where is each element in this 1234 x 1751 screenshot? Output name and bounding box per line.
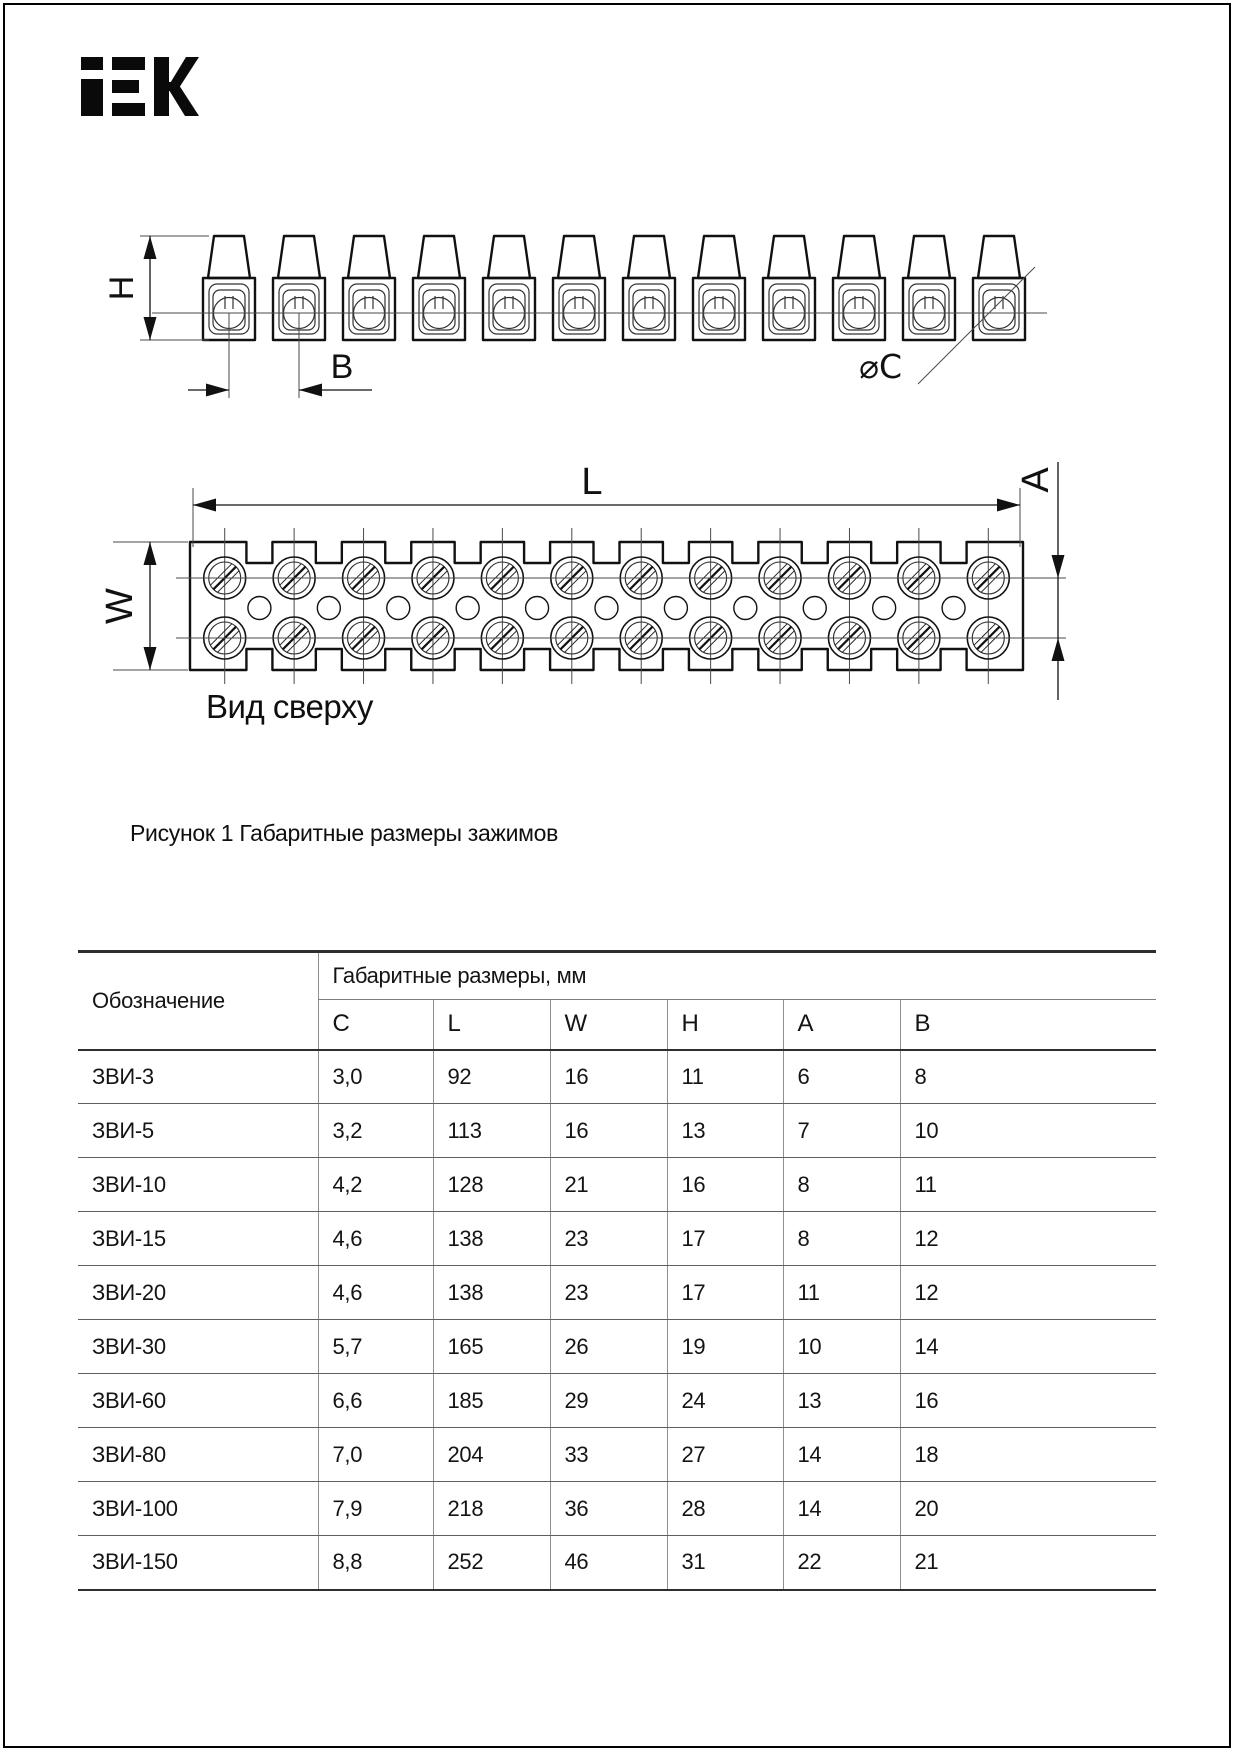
col-header-h: H bbox=[667, 1000, 783, 1050]
col-header-a: A bbox=[783, 1000, 900, 1050]
figure-drawings: H B ⌀C L A W bbox=[0, 0, 1234, 780]
cell-designation: ЗВИ-3 bbox=[78, 1050, 318, 1104]
cell-h: 24 bbox=[667, 1374, 783, 1428]
table-row: ЗВИ-33,092161168 bbox=[78, 1050, 1156, 1104]
mounting-hole bbox=[734, 597, 757, 620]
cell-c: 8,8 bbox=[318, 1536, 433, 1590]
cell-c: 6,6 bbox=[318, 1374, 433, 1428]
cell-designation: ЗВИ-10 bbox=[78, 1158, 318, 1212]
mounting-hole bbox=[317, 597, 340, 620]
cell-h: 16 bbox=[667, 1158, 783, 1212]
cell-c: 3,0 bbox=[318, 1050, 433, 1104]
cell-b: 14 bbox=[900, 1320, 1156, 1374]
dim-label-h: H bbox=[103, 276, 141, 301]
cell-a: 13 bbox=[783, 1374, 900, 1428]
cell-a: 14 bbox=[783, 1428, 900, 1482]
table-row: ЗВИ-1007,921836281420 bbox=[78, 1482, 1156, 1536]
cell-l: 165 bbox=[433, 1320, 550, 1374]
cell-designation: ЗВИ-5 bbox=[78, 1104, 318, 1158]
cell-h: 31 bbox=[667, 1536, 783, 1590]
screw-column bbox=[343, 528, 385, 684]
table-row: ЗВИ-154,61382317812 bbox=[78, 1212, 1156, 1266]
terminal-cell bbox=[623, 236, 675, 340]
cell-h: 13 bbox=[667, 1104, 783, 1158]
mounting-hole bbox=[248, 597, 271, 620]
cell-h: 19 bbox=[667, 1320, 783, 1374]
terminal-cell bbox=[763, 236, 815, 340]
cell-c: 7,0 bbox=[318, 1428, 433, 1482]
cell-c: 7,9 bbox=[318, 1482, 433, 1536]
mounting-hole bbox=[526, 597, 549, 620]
cell-b: 11 bbox=[900, 1158, 1156, 1212]
cell-a: 11 bbox=[783, 1266, 900, 1320]
cell-b: 12 bbox=[900, 1266, 1156, 1320]
cell-b: 8 bbox=[900, 1050, 1156, 1104]
cell-a: 8 bbox=[783, 1212, 900, 1266]
col-header-designation: Обозначение bbox=[78, 952, 318, 1050]
screw-column bbox=[551, 528, 593, 684]
terminal-cell bbox=[483, 236, 535, 340]
cell-h: 17 bbox=[667, 1266, 783, 1320]
terminal-cell bbox=[413, 236, 465, 340]
cell-b: 12 bbox=[900, 1212, 1156, 1266]
cell-l: 138 bbox=[433, 1266, 550, 1320]
cell-w: 26 bbox=[550, 1320, 667, 1374]
top-view-outline bbox=[190, 542, 1023, 670]
side-view-cells bbox=[203, 236, 1025, 340]
cell-a: 22 bbox=[783, 1536, 900, 1590]
col-header-w: W bbox=[550, 1000, 667, 1050]
mounting-hole bbox=[803, 597, 826, 620]
dim-label-l: L bbox=[581, 461, 602, 503]
screw-column bbox=[273, 528, 315, 684]
cell-designation: ЗВИ-60 bbox=[78, 1374, 318, 1428]
cell-designation: ЗВИ-15 bbox=[78, 1212, 318, 1266]
cell-l: 252 bbox=[433, 1536, 550, 1590]
cell-w: 16 bbox=[550, 1050, 667, 1104]
col-header-dimensions-group: Габаритные размеры, мм bbox=[318, 952, 1156, 1000]
terminal-cell bbox=[903, 236, 955, 340]
cell-h: 27 bbox=[667, 1428, 783, 1482]
cell-h: 11 bbox=[667, 1050, 783, 1104]
cell-w: 36 bbox=[550, 1482, 667, 1536]
cell-a: 10 bbox=[783, 1320, 900, 1374]
cell-h: 17 bbox=[667, 1212, 783, 1266]
mounting-hole bbox=[873, 597, 896, 620]
terminal-cell bbox=[833, 236, 885, 340]
screw-column bbox=[481, 528, 523, 684]
table-row: ЗВИ-104,21282116811 bbox=[78, 1158, 1156, 1212]
screw-column bbox=[898, 528, 940, 684]
cell-b: 10 bbox=[900, 1104, 1156, 1158]
cell-w: 46 bbox=[550, 1536, 667, 1590]
table-row: ЗВИ-53,21131613710 bbox=[78, 1104, 1156, 1158]
mounting-hole bbox=[387, 597, 410, 620]
cell-designation: ЗВИ-20 bbox=[78, 1266, 318, 1320]
cell-c: 4,6 bbox=[318, 1266, 433, 1320]
cell-designation: ЗВИ-100 bbox=[78, 1482, 318, 1536]
cell-w: 29 bbox=[550, 1374, 667, 1428]
terminal-cell bbox=[973, 236, 1025, 340]
mounting-hole bbox=[456, 597, 479, 620]
cell-b: 16 bbox=[900, 1374, 1156, 1428]
cell-c: 3,2 bbox=[318, 1104, 433, 1158]
cell-l: 128 bbox=[433, 1158, 550, 1212]
cell-w: 23 bbox=[550, 1266, 667, 1320]
cell-w: 33 bbox=[550, 1428, 667, 1482]
screw-column bbox=[967, 528, 1009, 684]
mounting-hole bbox=[664, 597, 687, 620]
cell-designation: ЗВИ-150 bbox=[78, 1536, 318, 1590]
terminal-cell bbox=[553, 236, 605, 340]
figure-caption: Рисунок 1 Габаритные размеры зажимов bbox=[130, 820, 558, 847]
cell-a: 8 bbox=[783, 1158, 900, 1212]
terminal-cell bbox=[693, 236, 745, 340]
screw-column bbox=[690, 528, 732, 684]
top-view-block bbox=[190, 528, 1023, 684]
table-row: ЗВИ-204,613823171112 bbox=[78, 1266, 1156, 1320]
col-header-c: C bbox=[318, 1000, 433, 1050]
table-row: ЗВИ-1508,825246312221 bbox=[78, 1536, 1156, 1590]
mounting-hole bbox=[595, 597, 618, 620]
table-row: ЗВИ-606,618529241316 bbox=[78, 1374, 1156, 1428]
screw-column bbox=[412, 528, 454, 684]
cell-w: 16 bbox=[550, 1104, 667, 1158]
cell-l: 185 bbox=[433, 1374, 550, 1428]
cell-designation: ЗВИ-80 bbox=[78, 1428, 318, 1482]
col-header-l: L bbox=[433, 1000, 550, 1050]
table-row: ЗВИ-807,020433271418 bbox=[78, 1428, 1156, 1482]
screw-column bbox=[828, 528, 870, 684]
cell-a: 14 bbox=[783, 1482, 900, 1536]
cell-l: 92 bbox=[433, 1050, 550, 1104]
table-header-row-1: Обозначение Габаритные размеры, мм bbox=[78, 952, 1156, 1000]
cell-designation: ЗВИ-30 bbox=[78, 1320, 318, 1374]
cell-c: 4,6 bbox=[318, 1212, 433, 1266]
col-header-b: B bbox=[900, 1000, 1156, 1050]
cell-w: 21 bbox=[550, 1158, 667, 1212]
dim-label-diameter-c: ⌀C bbox=[859, 347, 902, 386]
cell-l: 138 bbox=[433, 1212, 550, 1266]
terminal-cell bbox=[343, 236, 395, 340]
mounting-hole bbox=[942, 597, 965, 620]
cell-h: 28 bbox=[667, 1482, 783, 1536]
dim-label-b: B bbox=[331, 348, 354, 386]
screw-column bbox=[620, 528, 662, 684]
dim-label-a: A bbox=[1015, 467, 1057, 493]
cell-c: 5,7 bbox=[318, 1320, 433, 1374]
screw-column bbox=[204, 528, 246, 684]
cell-l: 113 bbox=[433, 1104, 550, 1158]
cell-a: 6 bbox=[783, 1050, 900, 1104]
cell-a: 7 bbox=[783, 1104, 900, 1158]
table-row: ЗВИ-305,716526191014 bbox=[78, 1320, 1156, 1374]
cell-w: 23 bbox=[550, 1212, 667, 1266]
cell-l: 218 bbox=[433, 1482, 550, 1536]
cell-b: 18 bbox=[900, 1428, 1156, 1482]
top-view-caption: Вид сверху bbox=[206, 688, 373, 726]
screw-column bbox=[759, 528, 801, 684]
document-page: H B ⌀C L A W Вид сверху Ри bbox=[0, 0, 1234, 1751]
dim-label-w: W bbox=[99, 588, 141, 624]
cell-b: 20 bbox=[900, 1482, 1156, 1536]
cell-b: 21 bbox=[900, 1536, 1156, 1590]
cell-l: 204 bbox=[433, 1428, 550, 1482]
dimensions-table: Обозначение Габаритные размеры, мм CLWHA… bbox=[78, 950, 1156, 1591]
cell-c: 4,2 bbox=[318, 1158, 433, 1212]
